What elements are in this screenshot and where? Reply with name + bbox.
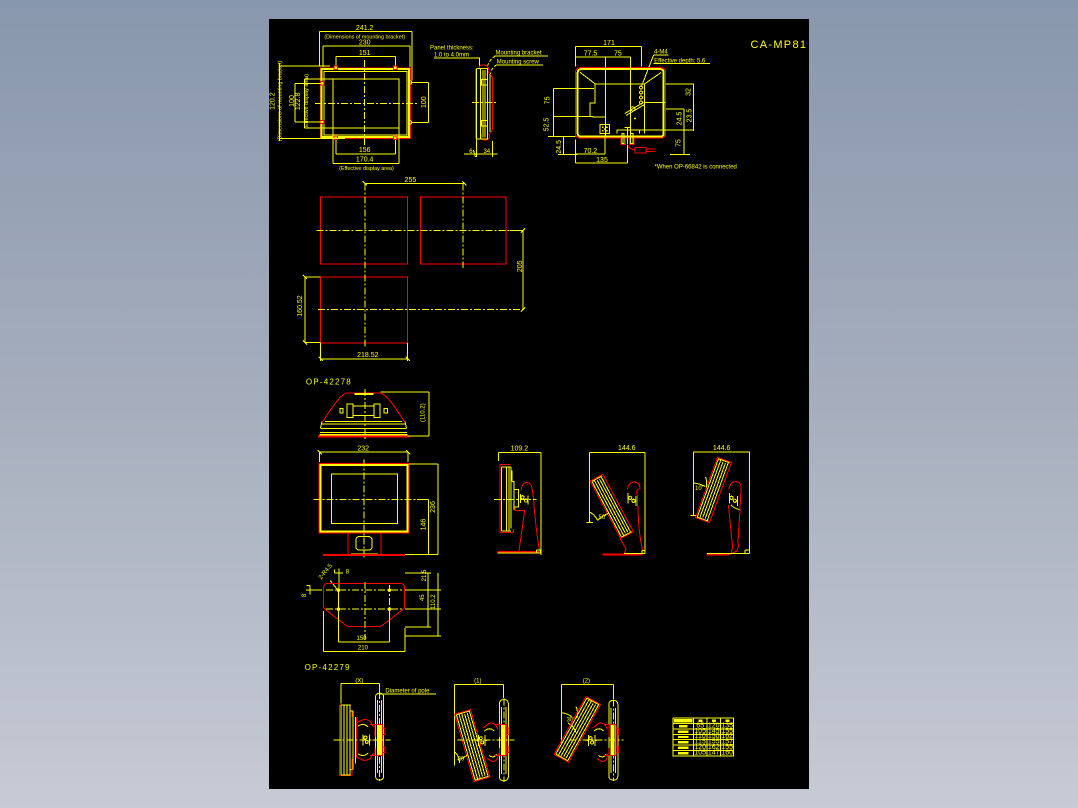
svg-text:109.2: 109.2 [511,446,529,453]
svg-text:120.2: 120.2 [269,92,276,110]
svg-text:230: 230 [359,39,371,46]
svg-text:160: 160 [721,750,733,757]
svg-text:32: 32 [686,88,693,96]
svg-text:(Dimensions of mounting bracke: (Dimensions of mounting bracket) [278,60,284,141]
svg-text:OP-42279: OP-42279 [305,663,351,672]
svg-text:75: 75 [676,139,683,147]
svg-text:156: 156 [359,147,371,154]
svg-text:205: 205 [517,260,524,272]
svg-text:144.6: 144.6 [618,445,636,452]
svg-text:8: 8 [302,593,308,597]
svg-text:146: 146 [420,519,427,531]
svg-text:*When OP-66842 is connected: *When OP-66842 is connected [655,164,737,170]
svg-text:(1): (1) [474,679,481,685]
svg-text:Diameter of pole: Diameter of pole [385,689,430,695]
svg-text:236: 236 [430,501,437,513]
svg-text:122.8: 122.8 [295,93,302,111]
svg-text:218.52: 218.52 [357,352,379,359]
svg-text:(110.2): (110.2) [420,403,426,422]
svg-text:21.5: 21.5 [422,569,428,581]
svg-text:170.4: 170.4 [356,156,374,163]
svg-text:147: 147 [708,750,720,757]
svg-text:(Effective display area): (Effective display area) [304,74,310,129]
svg-text:144.6: 144.6 [713,445,731,452]
svg-text:(Effective display area): (Effective display area) [339,166,394,172]
svg-text:210: 210 [358,645,369,651]
svg-text:45: 45 [420,594,426,601]
svg-text:10': 10' [695,486,703,492]
svg-text:23.5: 23.5 [687,109,694,123]
svg-text:(2): (2) [583,679,590,685]
svg-text:24.5: 24.5 [556,140,563,154]
svg-text:110.2: 110.2 [431,594,437,609]
svg-text:24.5: 24.5 [676,112,683,126]
svg-text:2-R4.5: 2-R4.5 [318,563,334,581]
svg-text:150: 150 [356,636,367,642]
svg-text:75: 75 [545,96,552,104]
svg-text:160.52: 160.52 [297,295,304,317]
svg-text:8: 8 [346,570,350,576]
svg-text:CA-MP81: CA-MP81 [751,39,808,51]
svg-text:105: 105 [694,750,706,757]
svg-text:OP-42278: OP-42278 [306,377,352,386]
svg-text:232: 232 [357,446,369,453]
svg-text:151: 151 [359,50,371,57]
svg-text:100: 100 [421,96,428,108]
svg-text:255: 255 [405,177,417,184]
svg-text:52.5: 52.5 [544,118,551,132]
svg-text:Panel thickness:: Panel thickness: [430,46,474,52]
svg-text:171: 171 [603,40,615,47]
